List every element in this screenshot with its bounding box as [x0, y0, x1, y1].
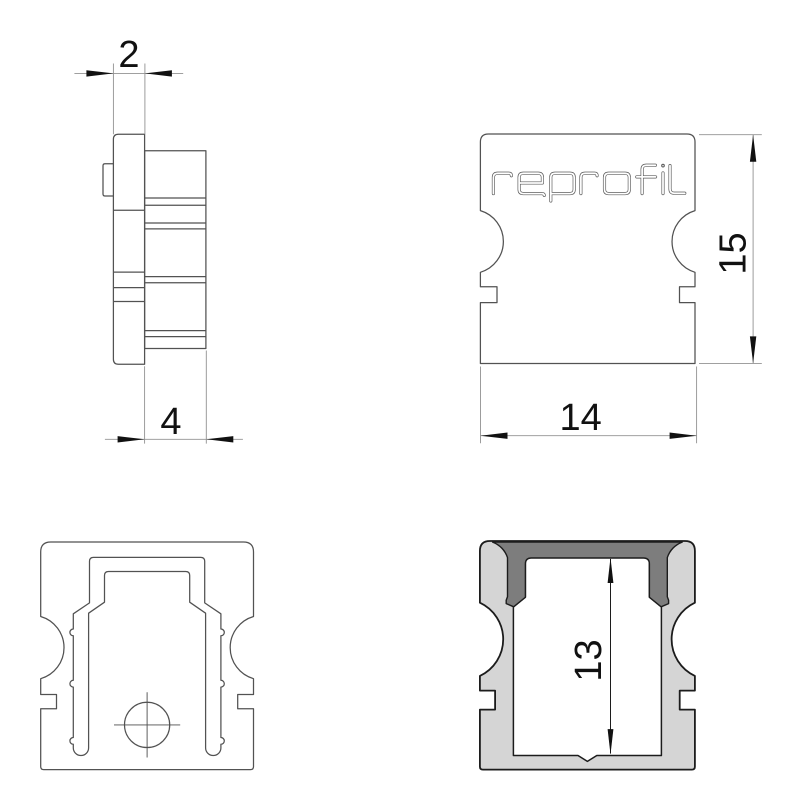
svg-text:13: 13: [568, 639, 610, 681]
svg-text:14: 14: [560, 397, 602, 439]
svg-text:2: 2: [118, 34, 139, 76]
svg-text:4: 4: [160, 401, 181, 443]
svg-text:15: 15: [713, 232, 755, 274]
